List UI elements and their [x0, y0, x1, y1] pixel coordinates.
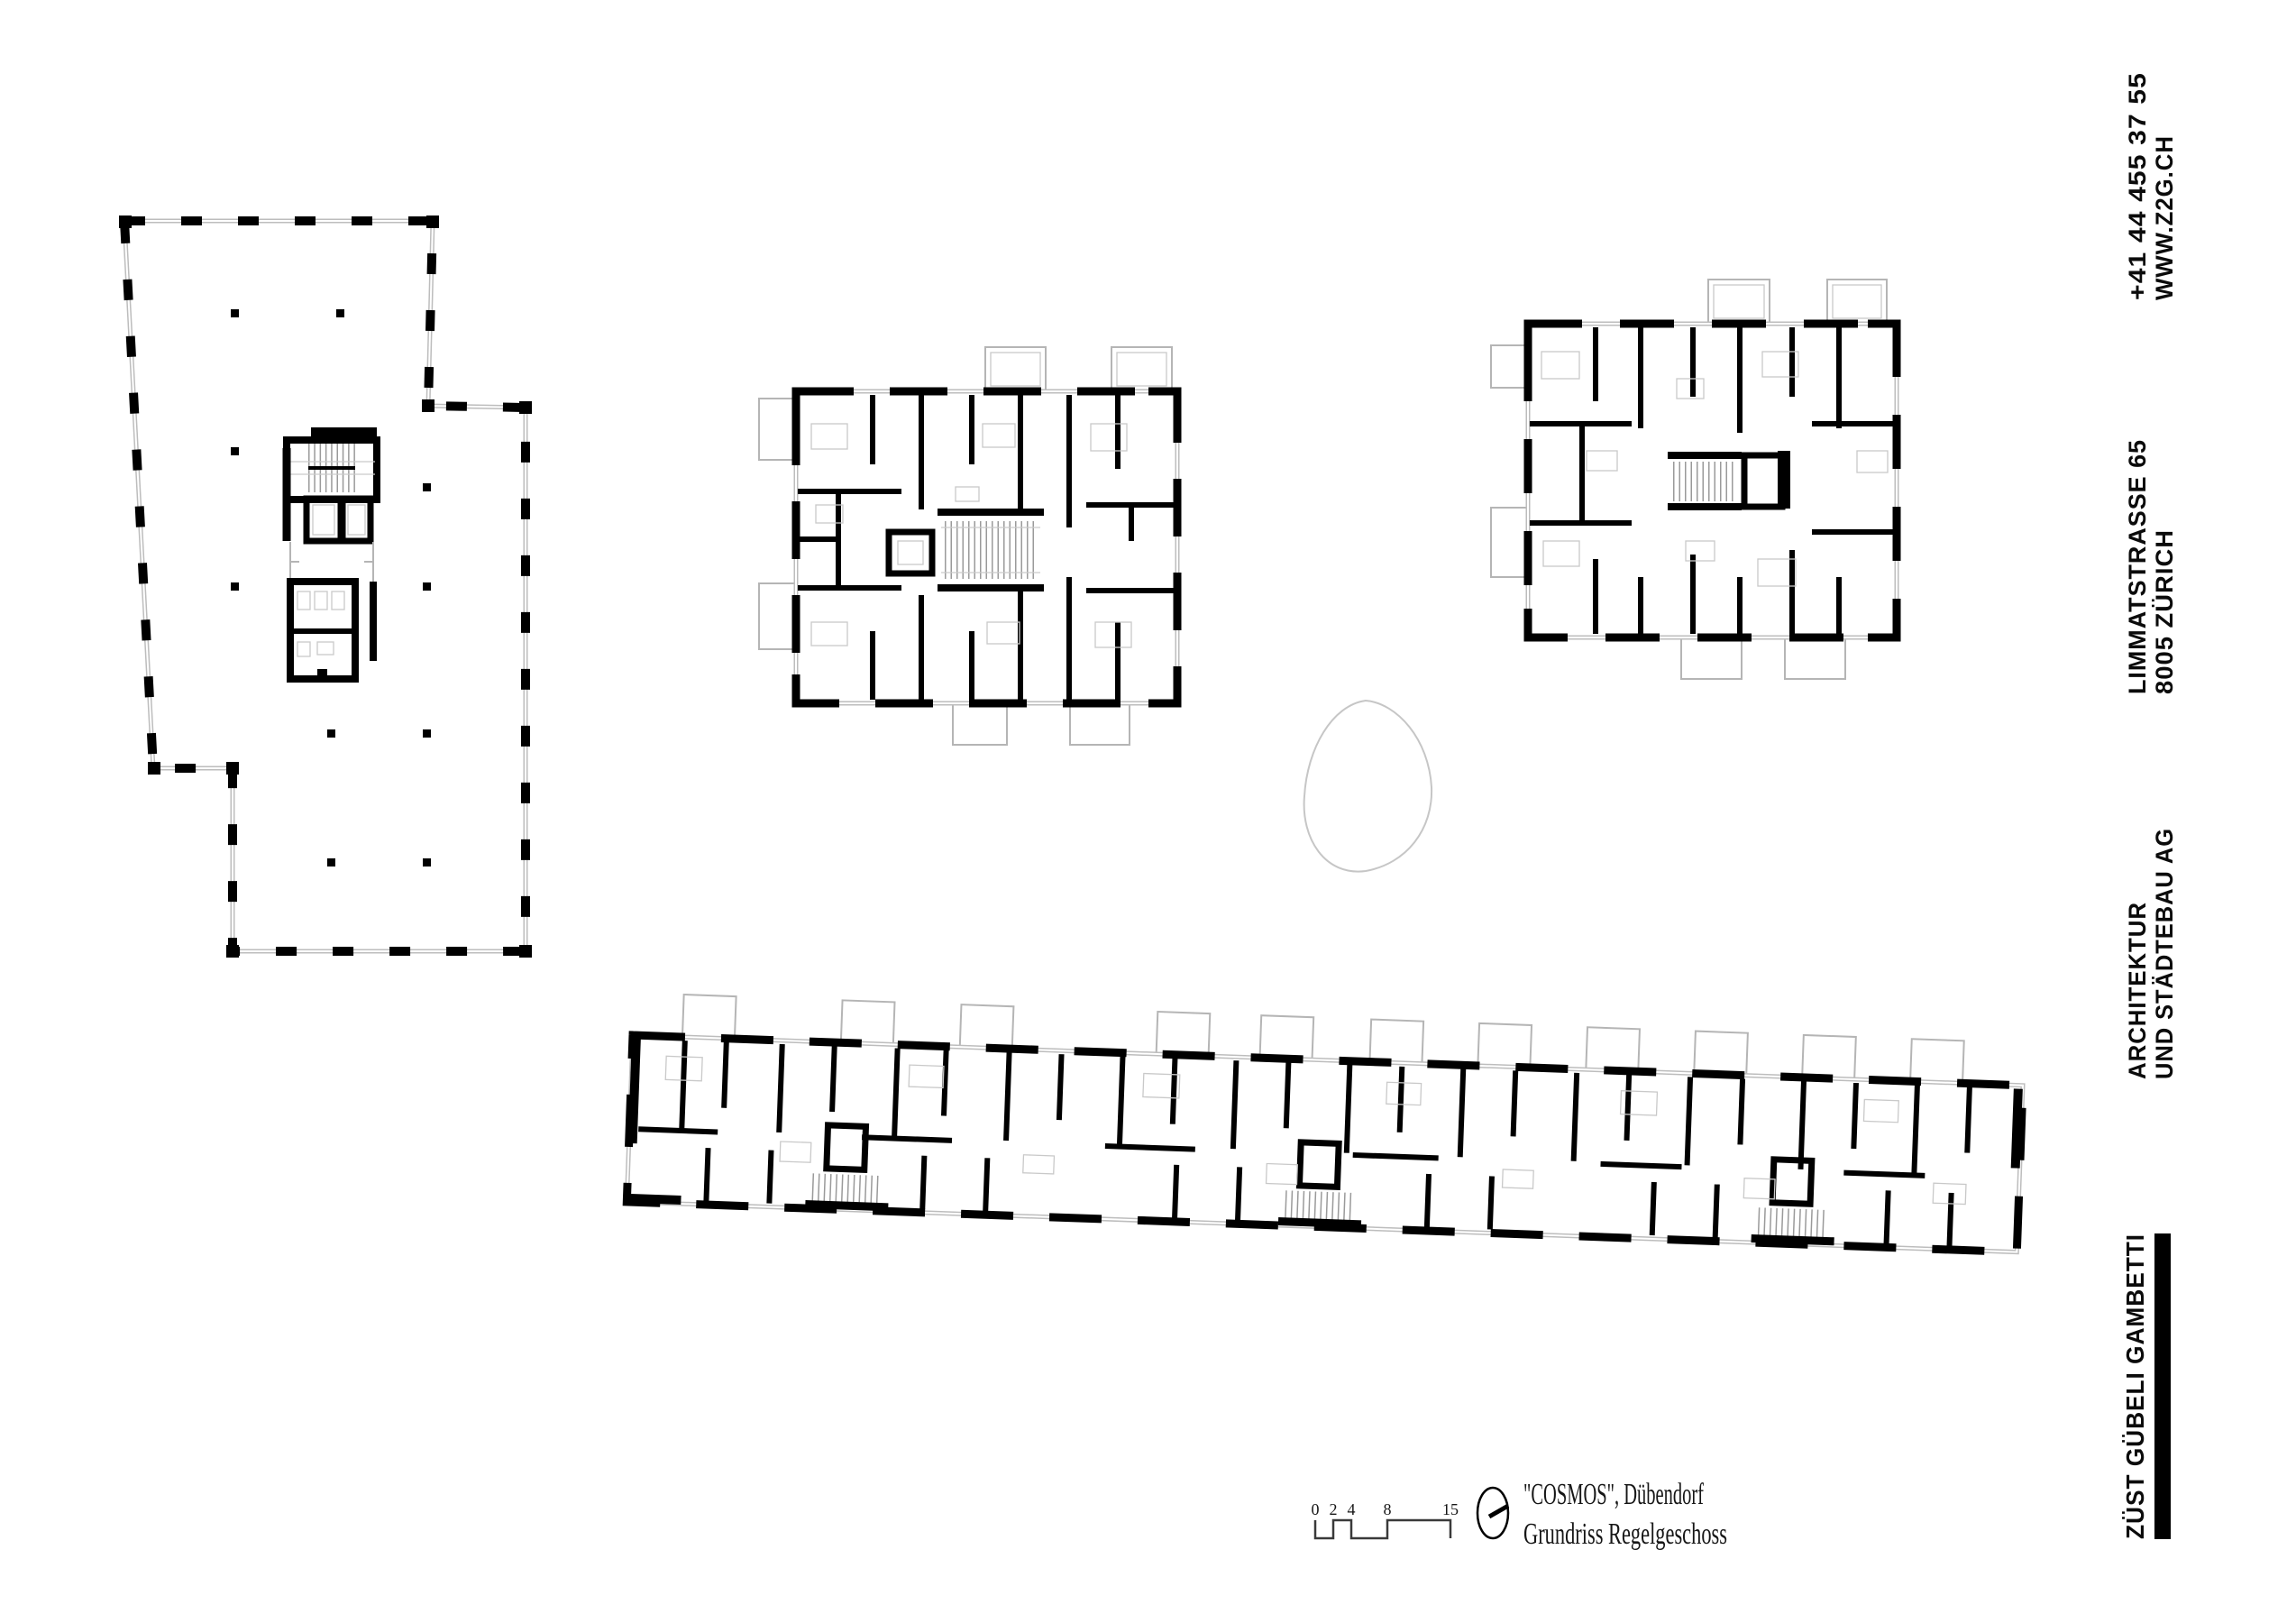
drawing-sheet: 0 2 4 8 15 "COSMOS", Dübendorf Grundriss… — [0, 0, 2296, 1623]
address-street: LIMMATSTRASSE 65 — [2124, 439, 2151, 694]
dashed-building-outline — [124, 221, 526, 951]
firm-type-line1: ARCHITEKTUR — [2124, 902, 2151, 1079]
firm-name: ZÜST GÜBELI GAMBETTI — [2121, 1233, 2149, 1539]
scale-label-15: 15 — [1442, 1500, 1459, 1518]
stair-tread-hatch — [1285, 1206, 1354, 1208]
stair-tread-hatch — [812, 1188, 881, 1191]
stair-tread-hatch — [1758, 1223, 1826, 1225]
building-a-plan — [119, 215, 532, 958]
scale-bar: 0 2 4 8 15 — [1312, 1500, 1459, 1538]
building-b-balconies — [759, 347, 1172, 745]
project-title: "COSMOS", Dübendorf — [1523, 1478, 1704, 1511]
building-b-core — [889, 512, 1044, 588]
firm-sidebar: +41 44 455 37 55 WWW.Z2G.CH LIMMATSTRASS… — [2121, 72, 2178, 1539]
website-url: WWW.Z2G.CH — [2151, 135, 2178, 300]
building-a-core — [287, 427, 377, 682]
building-c-core — [1668, 451, 1790, 509]
scale-label-4: 4 — [1348, 1500, 1356, 1518]
drawing-title: Grundriss Regelgeschoss — [1523, 1518, 1727, 1551]
scale-label-2: 2 — [1330, 1500, 1338, 1518]
scale-label-0: 0 — [1312, 1500, 1320, 1518]
building-c-plan — [1491, 280, 1897, 679]
firm-type-line2: UND STÄDTEBAU AG — [2151, 828, 2178, 1079]
brand-bar — [2154, 1233, 2171, 1539]
outline-corner-blocks — [119, 215, 532, 958]
pond-outline — [1304, 701, 1432, 872]
phone-number: +41 44 455 37 55 — [2124, 72, 2151, 300]
column-grid-dots — [231, 309, 431, 867]
address-city: 8005 ZÜRICH — [2151, 529, 2178, 694]
north-indicator-icon — [1477, 1488, 1508, 1538]
site-plan-canvas: 0 2 4 8 15 "COSMOS", Dübendorf Grundriss… — [0, 0, 2296, 1623]
title-block: "COSMOS", Dübendorf Grundriss Regelgesch… — [1523, 1478, 1727, 1551]
scale-label-8: 8 — [1384, 1500, 1392, 1518]
building-c-partitions — [1530, 327, 1895, 634]
building-d-plan — [627, 993, 2024, 1252]
building-b-plan — [759, 347, 1177, 745]
building-c-balconies — [1491, 280, 1887, 679]
building-d-balconies — [682, 995, 1964, 1083]
